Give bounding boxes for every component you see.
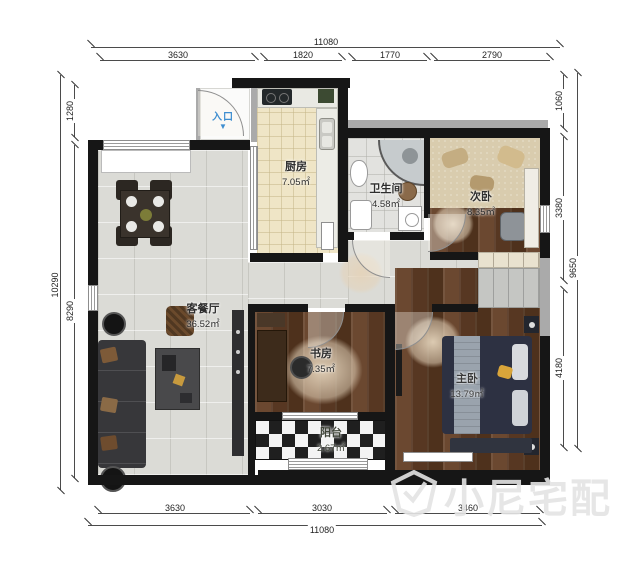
bed-pillow (512, 390, 528, 426)
toilet (350, 160, 368, 187)
left-wall-window (88, 285, 98, 311)
sofa-pillow (100, 397, 118, 414)
dim-right-seg-0: 1060 (554, 89, 564, 113)
cutting-board (318, 89, 334, 103)
wall-bottom-balcony (258, 470, 390, 485)
bed2-desk (524, 168, 539, 248)
master-floor-window-sill (403, 452, 473, 462)
bed2-wardrobe (478, 252, 540, 268)
dim-left-total-line (60, 75, 61, 490)
dim-top-seg-line (264, 60, 342, 61)
dim-top-seg-0: 3630 (166, 50, 190, 60)
cooktop-stove (262, 89, 292, 105)
dim-bottom-seg-line (98, 513, 250, 514)
centerpiece-plant (140, 209, 152, 221)
wall-study-master-divider (385, 304, 395, 470)
dim-top-seg-2: 1770 (378, 50, 402, 60)
wall-bottom-living (88, 475, 258, 485)
dim-top-total: 11080 (312, 37, 340, 47)
dim-top-seg-line (434, 60, 550, 61)
console-dot (236, 330, 240, 334)
dim-bottom-seg-line (258, 513, 387, 514)
wall-bottom-master (387, 470, 550, 485)
shower-drain (402, 148, 418, 164)
hallway-floor (248, 262, 348, 308)
study-desk (257, 330, 287, 402)
lamp (529, 322, 535, 328)
kitchen-sliding-door (250, 146, 258, 250)
entrance-text: 入口 (200, 108, 246, 123)
dim-top-seg-3: 2790 (480, 50, 504, 60)
nightstand (524, 316, 539, 333)
sink-bowl (322, 136, 332, 147)
decor-gold (173, 374, 186, 387)
entrance-label: 入口 ▼ (200, 108, 246, 131)
wall-bath-bed2-divider (424, 138, 430, 218)
wall-left (88, 150, 98, 485)
dim-bottom-seg-0: 3630 (163, 503, 187, 513)
sink-bowl (322, 122, 332, 133)
bed-blanket (454, 336, 480, 434)
bed2-right-window (540, 205, 550, 233)
floorplan-canvas: 入口 ▼ 厨房 7.05㎡ 卫生间 4.58㎡ 次卧 8.35㎡ 客餐厅 36.… (0, 0, 640, 581)
wall-top-kitchen (232, 78, 350, 88)
kitchen-sink (319, 118, 335, 150)
wall-right-lower (540, 336, 550, 485)
master-tv (396, 344, 402, 396)
side-table-round (102, 312, 126, 336)
kitchen-west-partition (251, 88, 257, 142)
dim-top-total-line (91, 47, 560, 48)
dim-bottom-seg-line (395, 513, 540, 514)
dim-top-seg-line (352, 60, 427, 61)
dim-right-seg-2: 4180 (554, 356, 564, 380)
balcony-window (288, 458, 368, 470)
kitchen-door-leaf (321, 222, 334, 250)
wall-kitchen-bottom (250, 253, 323, 262)
dining-table (120, 190, 170, 238)
washer-door (405, 213, 419, 227)
dim-right-seg-1: 3380 (554, 196, 564, 220)
roof-edge-strip (348, 120, 548, 128)
dim-left-seg-0: 1280 (65, 99, 75, 123)
wall-right-upper (540, 128, 550, 258)
study-shelf (257, 313, 285, 327)
washing-machine (398, 206, 422, 231)
entrance-arrow-icon: ▼ (200, 123, 246, 131)
study-balcony-sliding-door (282, 412, 358, 420)
dim-bottom-total: 11080 (308, 525, 336, 535)
decor-dark (180, 393, 192, 403)
wood-stool (398, 182, 417, 201)
dim-bottom-seg-1: 3030 (310, 503, 334, 513)
wall-study-left (248, 312, 255, 475)
wall-bath-bottom-west (348, 232, 354, 240)
wall-bed2-bottom (430, 252, 478, 260)
decor-dark (162, 355, 176, 371)
bed2-chair (500, 212, 527, 241)
wall-study-top-west (248, 304, 308, 312)
dim-top-seg-line (100, 60, 255, 61)
dim-left-total: 10290 (50, 270, 60, 299)
wall-bath-top (348, 128, 540, 138)
plate (153, 196, 164, 207)
master-dresser (478, 268, 540, 308)
plate (126, 221, 137, 232)
bathroom-vanity (350, 200, 372, 230)
burner (279, 93, 289, 103)
woven-basket-stool (166, 306, 194, 336)
tv-console (232, 310, 244, 456)
accent-pillow-yellow (497, 364, 514, 379)
wall-kitchen-right (338, 78, 348, 262)
master-bed (442, 336, 532, 434)
burner (266, 93, 276, 103)
plate (126, 196, 137, 207)
dim-top-seg-1: 1820 (291, 50, 315, 60)
dim-bottom-seg-2: 3460 (456, 503, 480, 513)
bed-end-bench (450, 438, 532, 453)
bed-pillow (512, 344, 528, 380)
plate (153, 221, 164, 232)
dim-right-total: 9650 (568, 256, 578, 280)
wall-master-top-east (432, 304, 478, 312)
console-dot (236, 350, 240, 354)
sofa-pillow (100, 435, 118, 451)
living-north-window (103, 140, 190, 150)
study-chair (290, 356, 313, 379)
bay-window-sill (101, 150, 191, 173)
balcony-floor (255, 420, 389, 460)
wall-bath-bottom-east (390, 232, 424, 240)
wall-right-gray (540, 258, 550, 336)
coffee-table-unit (155, 348, 200, 410)
console-dot (236, 370, 240, 374)
dim-left-seg-1: 8290 (65, 299, 75, 323)
bed2-pillow (469, 174, 495, 192)
